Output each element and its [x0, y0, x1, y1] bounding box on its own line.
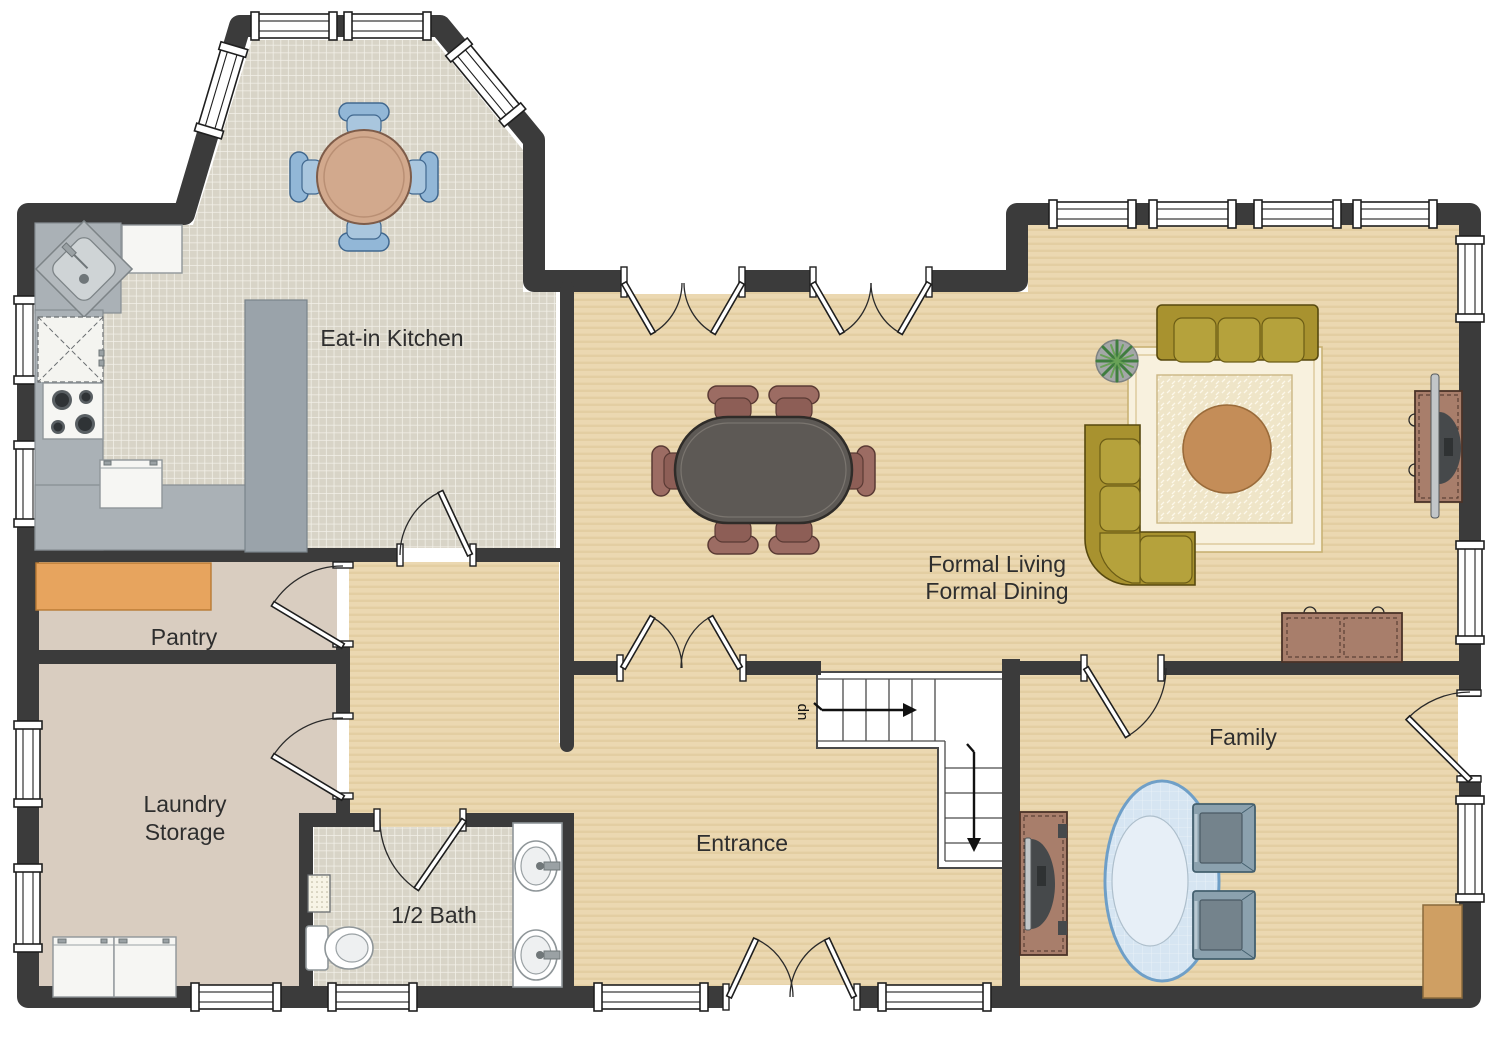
window — [1353, 200, 1437, 228]
window — [594, 983, 708, 1011]
floor-plan-canvas: up — [0, 0, 1500, 1043]
plant-icon — [1096, 340, 1138, 382]
window — [878, 983, 991, 1011]
refrigerator — [122, 225, 182, 273]
toilet — [306, 926, 373, 970]
family-armchair — [1193, 804, 1255, 872]
window — [14, 721, 42, 807]
dining-table — [675, 417, 852, 523]
dining-chair — [769, 386, 819, 420]
storage-bench — [1282, 607, 1402, 662]
family-armchair — [1193, 891, 1255, 959]
window — [1149, 200, 1236, 228]
room-label-pantry: Pantry — [151, 624, 218, 650]
dining-chair — [708, 386, 758, 420]
base-cabinet — [100, 460, 162, 508]
dryer — [114, 937, 176, 997]
window — [1254, 200, 1341, 228]
room-label-family: Family — [1209, 724, 1277, 750]
medicine-cabinet — [308, 875, 330, 912]
living-upper-floor — [1028, 223, 1459, 303]
family-tv-console — [1020, 812, 1067, 955]
window — [1456, 541, 1484, 644]
room-label-storage: Storage — [145, 819, 226, 845]
window — [1049, 200, 1136, 228]
window — [1456, 236, 1484, 322]
floor-plan: up — [0, 0, 1500, 1043]
tv-console — [1409, 374, 1462, 518]
room-label-formal-living: Formal Living — [928, 551, 1066, 577]
dishwasher — [38, 317, 104, 382]
window — [328, 983, 417, 1011]
stove — [43, 383, 103, 439]
stairs-direction-label: up — [793, 704, 810, 721]
kitchen-table — [317, 130, 411, 224]
window — [14, 864, 42, 952]
room-label-entrance: Entrance — [696, 830, 788, 856]
room-label-laundry: Laundry — [143, 791, 227, 817]
window — [251, 12, 337, 40]
window — [191, 983, 281, 1011]
round-rug — [1183, 405, 1271, 493]
dining-chair — [708, 520, 758, 554]
room-label-half-bath: 1/2 Bath — [391, 902, 477, 928]
pantry-shelf — [36, 563, 211, 610]
dining-chair — [769, 520, 819, 554]
bath-vanity — [513, 823, 562, 987]
room-label-kitchen: Eat-in Kitchen — [320, 325, 463, 351]
corner-table — [1423, 905, 1462, 998]
window — [1456, 796, 1484, 902]
hall-opening-floor — [554, 743, 578, 823]
kitchen-peninsula — [245, 300, 307, 552]
area-rug — [1128, 347, 1322, 552]
sofa-three-seat — [1157, 305, 1318, 362]
window — [344, 12, 431, 40]
washer — [53, 937, 114, 997]
room-label-formal-dining: Formal Dining — [925, 578, 1068, 604]
